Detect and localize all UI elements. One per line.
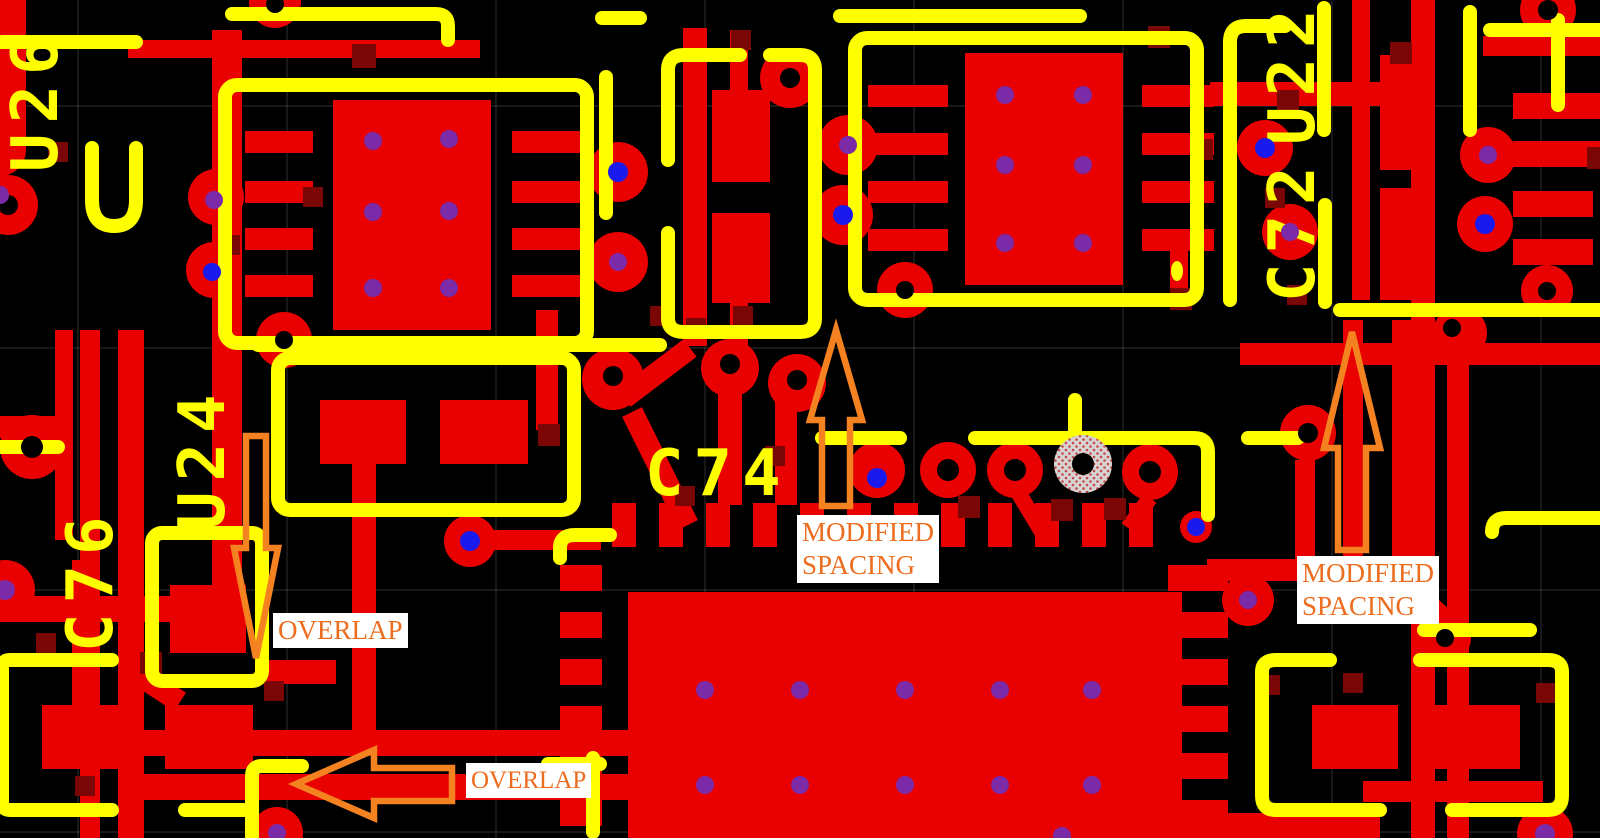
modified-spacing-right-line1: MODIFIED (1302, 557, 1434, 590)
modified-spacing-center-line1: MODIFIED (802, 516, 934, 549)
silk-dot (1171, 261, 1183, 281)
overlap-label-top[interactable]: OVERLAP (273, 613, 408, 648)
designator-u22[interactable]: U22 (1256, 0, 1330, 145)
ic1-body-pad (333, 100, 491, 330)
designator-u26[interactable]: U26 (0, 26, 73, 172)
overlap-label-bottom[interactable]: OVERLAP (466, 763, 591, 798)
modified-spacing-center-line2: SPACING (802, 549, 934, 582)
designator-c76[interactable]: C76 (54, 506, 128, 652)
modified-spacing-right-line2: SPACING (1302, 590, 1434, 623)
cap-pad (712, 213, 770, 303)
qfn-thermal-pad (628, 592, 1182, 838)
designator-c74[interactable]: C74 (645, 437, 791, 511)
designator-u24[interactable]: U24 (166, 384, 240, 530)
overlap-label-top-text: OVERLAP (278, 615, 403, 645)
pcb-canvas: U26 C76 U24 C74 C72 U22 (0, 0, 1600, 838)
unconnected-pad[interactable] (1054, 435, 1112, 493)
modified-spacing-label-right[interactable]: MODIFIED SPACING (1297, 556, 1439, 624)
overlap-label-bottom-text: OVERLAP (471, 767, 586, 794)
cap-pad (712, 90, 770, 182)
pcb-layout-svg: U26 C76 U24 C74 C72 U22 (0, 0, 1600, 838)
ic2-body-pad (965, 53, 1123, 285)
modified-spacing-label-center[interactable]: MODIFIED SPACING (797, 515, 939, 583)
